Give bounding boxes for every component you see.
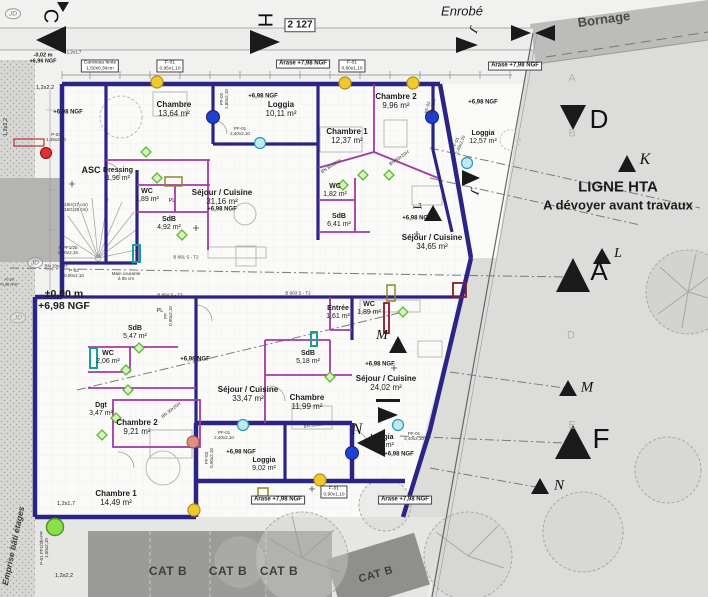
cat-b-2: CAT B [209,565,247,579]
ngf-1: +6,98 NGF [248,94,278,101]
ligne-hta-line2: A dévoyer avant travaux [543,199,693,214]
lot-code-2: B 894 S - T3 [157,292,182,297]
section-letter-m: M [581,379,594,396]
p01-label: P-01 PF1/2b+FP1,50x2,10 [39,531,49,565]
room-sejour-a4: Séjour / Cuisine24,02 m² [356,374,416,392]
grid-letter-a: A [568,73,575,86]
room-sejour-a2: Séjour / Cuisine34,65 m² [402,233,462,251]
ngf-2: +6,98 NGF [53,110,83,117]
room-loggia-a4: Loggia7,42 m² [370,434,394,450]
level-zero: ±0,00 m+6,98 NGF [38,288,90,312]
ngf-6: +6,98 NGF [365,362,395,369]
room-loggia-a3: Loggia9,02 m² [252,457,276,473]
section-letter-l: L [614,246,622,262]
room-sejour-a1: Séjour / Cuisine31,16 m² [192,188,252,206]
section-letter-h: H [253,13,276,27]
section-letter-d: D [590,105,609,135]
room-chambre-a4: Chambre11,99 m² [290,393,325,411]
room-dgt-a3: Dgt3,47 m² [89,402,113,418]
room-sejour-a3: Séjour / Cuisine33,47 m² [218,385,278,403]
pf01-label-1: PF-012,40x2,10 [230,126,250,136]
ligne-hta-line1: LIGNE HTA [578,178,658,195]
caniveau-label: Caniveau fente1,50x0,30cm [81,59,119,72]
level-small: +0,00+6,98 NGF [0,277,19,286]
section-letter-n: N [554,477,564,494]
pp-label: PP0,90x2,10 [163,306,173,326]
f01-label-a: F-010,95x1,10 [156,59,183,72]
pf03-label: PF-030,90x2,10 [204,448,214,468]
pf01-label-4: PF-012,40x2,10 [404,431,424,441]
level-neg: -0,02 m+6,96 NGF [29,53,56,66]
room-chambre2-a3: Chambre 29,21 m² [116,418,157,436]
grid-letter-e: E [568,420,575,433]
room-wc-a4: WC1,89 m² [357,301,381,317]
ngf-9: +6,98 NGF [226,450,256,457]
room-loggia-a2: Loggia12,57 m² [469,130,497,146]
window-dim-12x22-b: 1,2x2,2 [55,573,73,579]
pl-label-1: PL [169,198,176,204]
f01-label-b: F-010,80x1,10 [338,59,365,72]
pf02-label-1: PF-021,80x2,10 [219,89,229,109]
room-sdb-a3: SdB5,47 m² [123,325,147,341]
room-chambre1-a3: Chambre 114,49 m² [95,489,136,507]
plan-letter-n: N [352,421,363,439]
arase-label-2: Arase +7,98 NGF [488,62,542,71]
enrobe-label: Enrobé [441,5,483,20]
plan-letter-m: M [376,328,388,344]
room-wc-a3: WC2,06 m² [96,350,120,366]
window-dim-12x22-left: 1,2x2,2 [3,118,9,136]
grid-letter-b: B [568,128,575,141]
plan-drawing-svg [0,0,708,597]
lot-code-3: B 903 S - T2 [285,290,310,295]
window-dim-12x17: 1,2x1,7 [57,501,75,507]
ngf-5: +6,98 NGF [402,216,432,223]
room-loggia-1011: Loggia10,11 m² [266,100,297,118]
room-wc-a2: WC1,82 m² [323,183,347,199]
grid-letter-d: D [567,330,575,343]
arase-label-3: Arase +7,98 NGF [251,496,305,505]
f01-label-c: F-010,90x1,10 [320,485,347,498]
main-courante-label: Main couranteà 95 cm [112,271,141,281]
window-dim-12x17-top: 1,2x1,7 [67,49,82,54]
floor-plan-sheet: JD C H 2 127 Enrobé Bornage J -0,02 m+6,… [0,0,708,597]
lot-code-1: B 891 S - T2 [173,254,198,259]
cat-b-3: CAT B [260,565,298,579]
ngf-8: +6,98 NGF [180,357,210,364]
stairs-label: 16H(17 cm)15G(28 cm) [64,202,88,212]
room-chambre1-a2: Chambre 112,37 m² [326,127,367,145]
bn20-label: BN 20x20H [44,263,67,268]
ngf-4: +6,98 NGF [468,100,498,107]
room-sdb-a1: SdB4,92 m² [157,216,181,232]
room-sdb-a2: SdB6,41 m² [327,213,351,229]
room-chambre-1364: Chambre13,64 m² [157,100,192,118]
section-letter-f: F [592,423,609,455]
p03-label: P-031,36x2,10 [46,132,66,142]
ppf-label: P-PF1/2b0,90x2,15 [58,245,78,255]
room-entree-a4: Entrée1,61 m² [326,305,350,321]
asc-label: ASC [81,165,100,175]
room-sdb-a4: SdB5,18 m² [296,350,320,366]
room-chambre2-a2: Chambre 29,96 m² [375,92,416,110]
p02-label: P-020,90x2,10 [64,268,84,278]
dimension-top: 2 127 [284,18,315,32]
arase-label-4: Arase +7,98 NGF [378,496,432,505]
room-dressing: Dressing1,96 m² [103,167,133,183]
cat-b-1: CAT B [149,565,187,579]
arase-label-1: Arase +7,98 NGF [276,60,330,69]
section-letter-k: K [640,151,651,169]
pf01-label-3: PF-012,40x2,10 [214,430,234,440]
room-wc-a1: WC1,89 m² [135,188,159,204]
ngf-7: +6,98 NGF [384,452,414,459]
window-dim-12x22-a: 1,2x2,2 [36,85,54,91]
section-letter-a: A [590,257,607,287]
section-letter-c: C [38,8,61,23]
ngf-3: +6,98 NGF [207,207,237,214]
